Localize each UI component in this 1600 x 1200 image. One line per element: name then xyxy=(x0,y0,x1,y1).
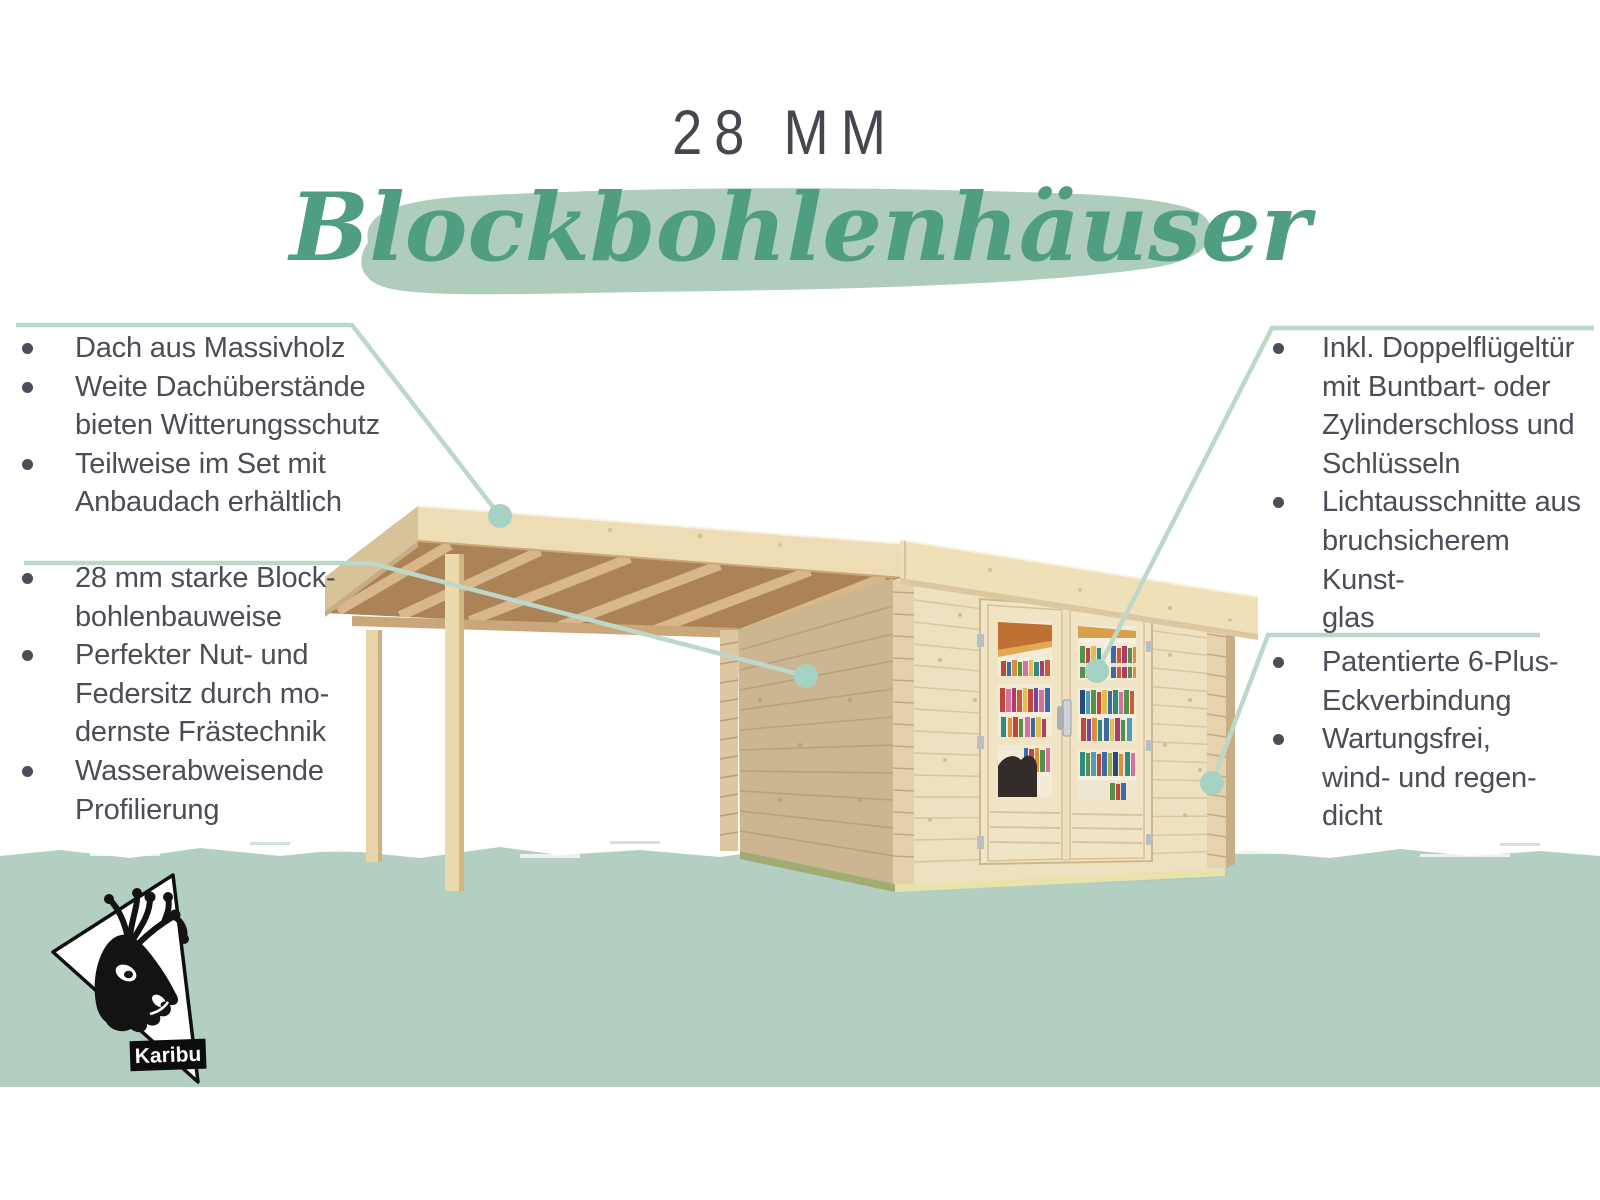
feature-item: Wartungsfrei, wind- und regen- dicht xyxy=(1266,720,1596,836)
bullet-dot xyxy=(22,459,33,470)
bullet-dot xyxy=(1273,657,1284,668)
callout-circle-corner xyxy=(1200,771,1224,795)
feature-list-left-bottom: 28 mm starke Block- bohlenbauweise Perfe… xyxy=(16,559,436,829)
feature-item: Wasserabweisende Profilierung xyxy=(16,752,436,829)
feature-item: Dach aus Massivholz xyxy=(16,329,436,368)
corner-joint-back xyxy=(720,630,738,851)
callout-circle-wall xyxy=(794,664,818,688)
feature-item: Teilweise im Set mit Anbaudach erhältlic… xyxy=(16,445,436,522)
door-glass-left xyxy=(998,622,1052,797)
double-door xyxy=(977,599,1152,864)
callout-circle-roof xyxy=(488,504,512,528)
corner-joint-front-left xyxy=(893,580,914,884)
bullet-dot xyxy=(22,766,33,777)
bullet-dot xyxy=(1273,343,1284,354)
bullet-dot xyxy=(1273,497,1284,508)
feature-item: Lichtausschnitte aus bruchsicherem Kunst… xyxy=(1266,483,1596,637)
bookshelf-glimpse xyxy=(1001,660,1050,676)
feature-list-right-bottom: Patentierte 6-Plus- Eckverbindung Wartun… xyxy=(1266,643,1596,836)
infographic-page: Karibu 28 MM Blockbohlenhäuser Dach aus … xyxy=(0,0,1600,1200)
feature-item: Inkl. Doppelflügeltür mit Buntbart- oder… xyxy=(1266,329,1596,483)
headline-size-label: 28 MM xyxy=(110,97,1460,169)
feature-item: 28 mm starke Block- bohlenbauweise xyxy=(16,559,436,636)
feature-item: Perfekter Nut- und Federsitz durch mo- d… xyxy=(16,636,436,752)
callout-circle-door xyxy=(1085,659,1109,683)
bullet-dot xyxy=(22,343,33,354)
carport-post-front xyxy=(445,554,464,891)
corner-joint-right xyxy=(1207,624,1235,868)
feature-item: Weite Dachüberstände bieten Witterungssc… xyxy=(16,368,436,445)
bullet-dot xyxy=(22,573,33,584)
feature-list-left-top: Dach aus Massivholz Weite Dachüberstände… xyxy=(16,329,436,522)
brand-label: Karibu xyxy=(134,1043,201,1068)
bullet-dot xyxy=(1273,734,1284,745)
ground-band xyxy=(0,841,1600,1087)
door-leaf-left xyxy=(988,605,1062,861)
feature-item: Patentierte 6-Plus- Eckverbindung xyxy=(1266,643,1596,720)
bullet-dot xyxy=(22,650,33,661)
bullet-dot xyxy=(22,382,33,393)
headline-product-script: Blockbohlenhäuser xyxy=(0,168,1600,288)
armchair-glimpse xyxy=(998,756,1037,797)
feature-list-right-top: Inkl. Doppelflügeltür mit Buntbart- oder… xyxy=(1266,329,1596,638)
